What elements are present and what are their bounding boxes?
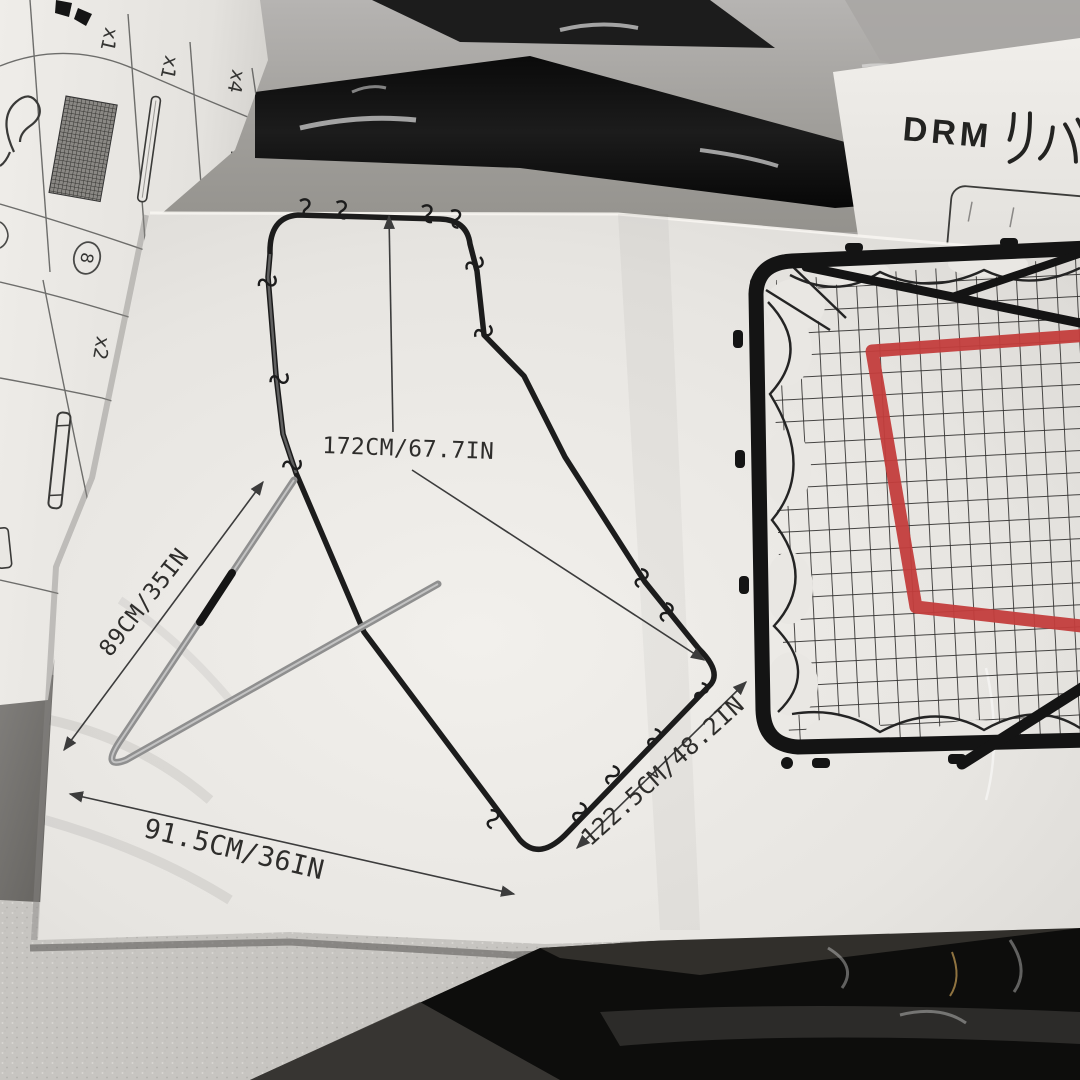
photo-canvas: x1 x1 x4 x2 8 — [0, 0, 1080, 1080]
net-photo — [733, 238, 1080, 769]
central-sheet: 172CM/67.7IN 89CM/35IN 91.5CM/36IN 122.5… — [38, 199, 1080, 944]
qty-label: x2 — [88, 335, 114, 362]
net-mesh — [775, 258, 1080, 746]
unboxing-photo-scene: x1 x1 x4 x2 8 — [0, 0, 1080, 1080]
drm-title: DRM — [901, 110, 993, 156]
